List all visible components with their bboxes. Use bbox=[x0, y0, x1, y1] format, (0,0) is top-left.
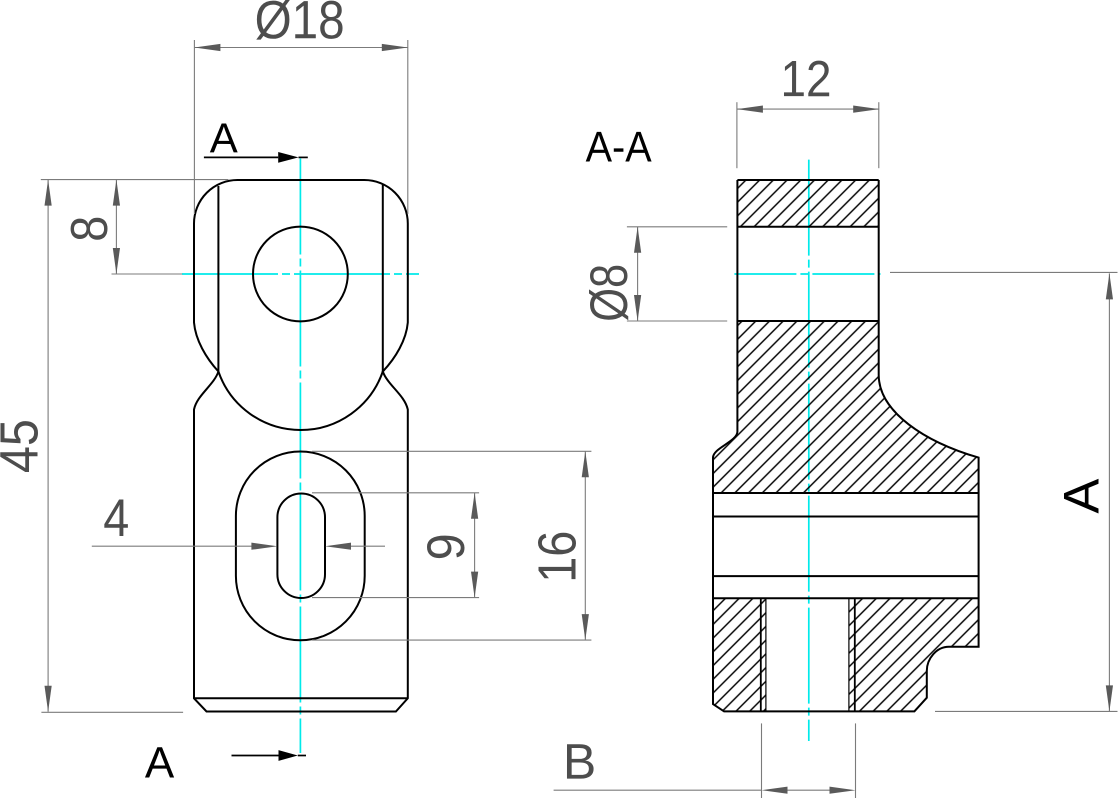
svg-text:16: 16 bbox=[527, 531, 587, 583]
svg-text:A: A bbox=[1054, 478, 1110, 514]
svg-text:9: 9 bbox=[417, 533, 476, 560]
svg-text:A: A bbox=[210, 114, 238, 161]
svg-text:12: 12 bbox=[780, 50, 831, 107]
svg-text:45: 45 bbox=[0, 419, 50, 473]
svg-text:B: B bbox=[563, 734, 596, 790]
svg-text:A-A: A-A bbox=[586, 124, 652, 172]
svg-text:A: A bbox=[145, 739, 175, 788]
svg-text:4: 4 bbox=[103, 489, 129, 548]
svg-text:Ø18: Ø18 bbox=[255, 0, 345, 50]
svg-text:8: 8 bbox=[61, 216, 119, 242]
svg-text:Ø8: Ø8 bbox=[580, 264, 639, 322]
